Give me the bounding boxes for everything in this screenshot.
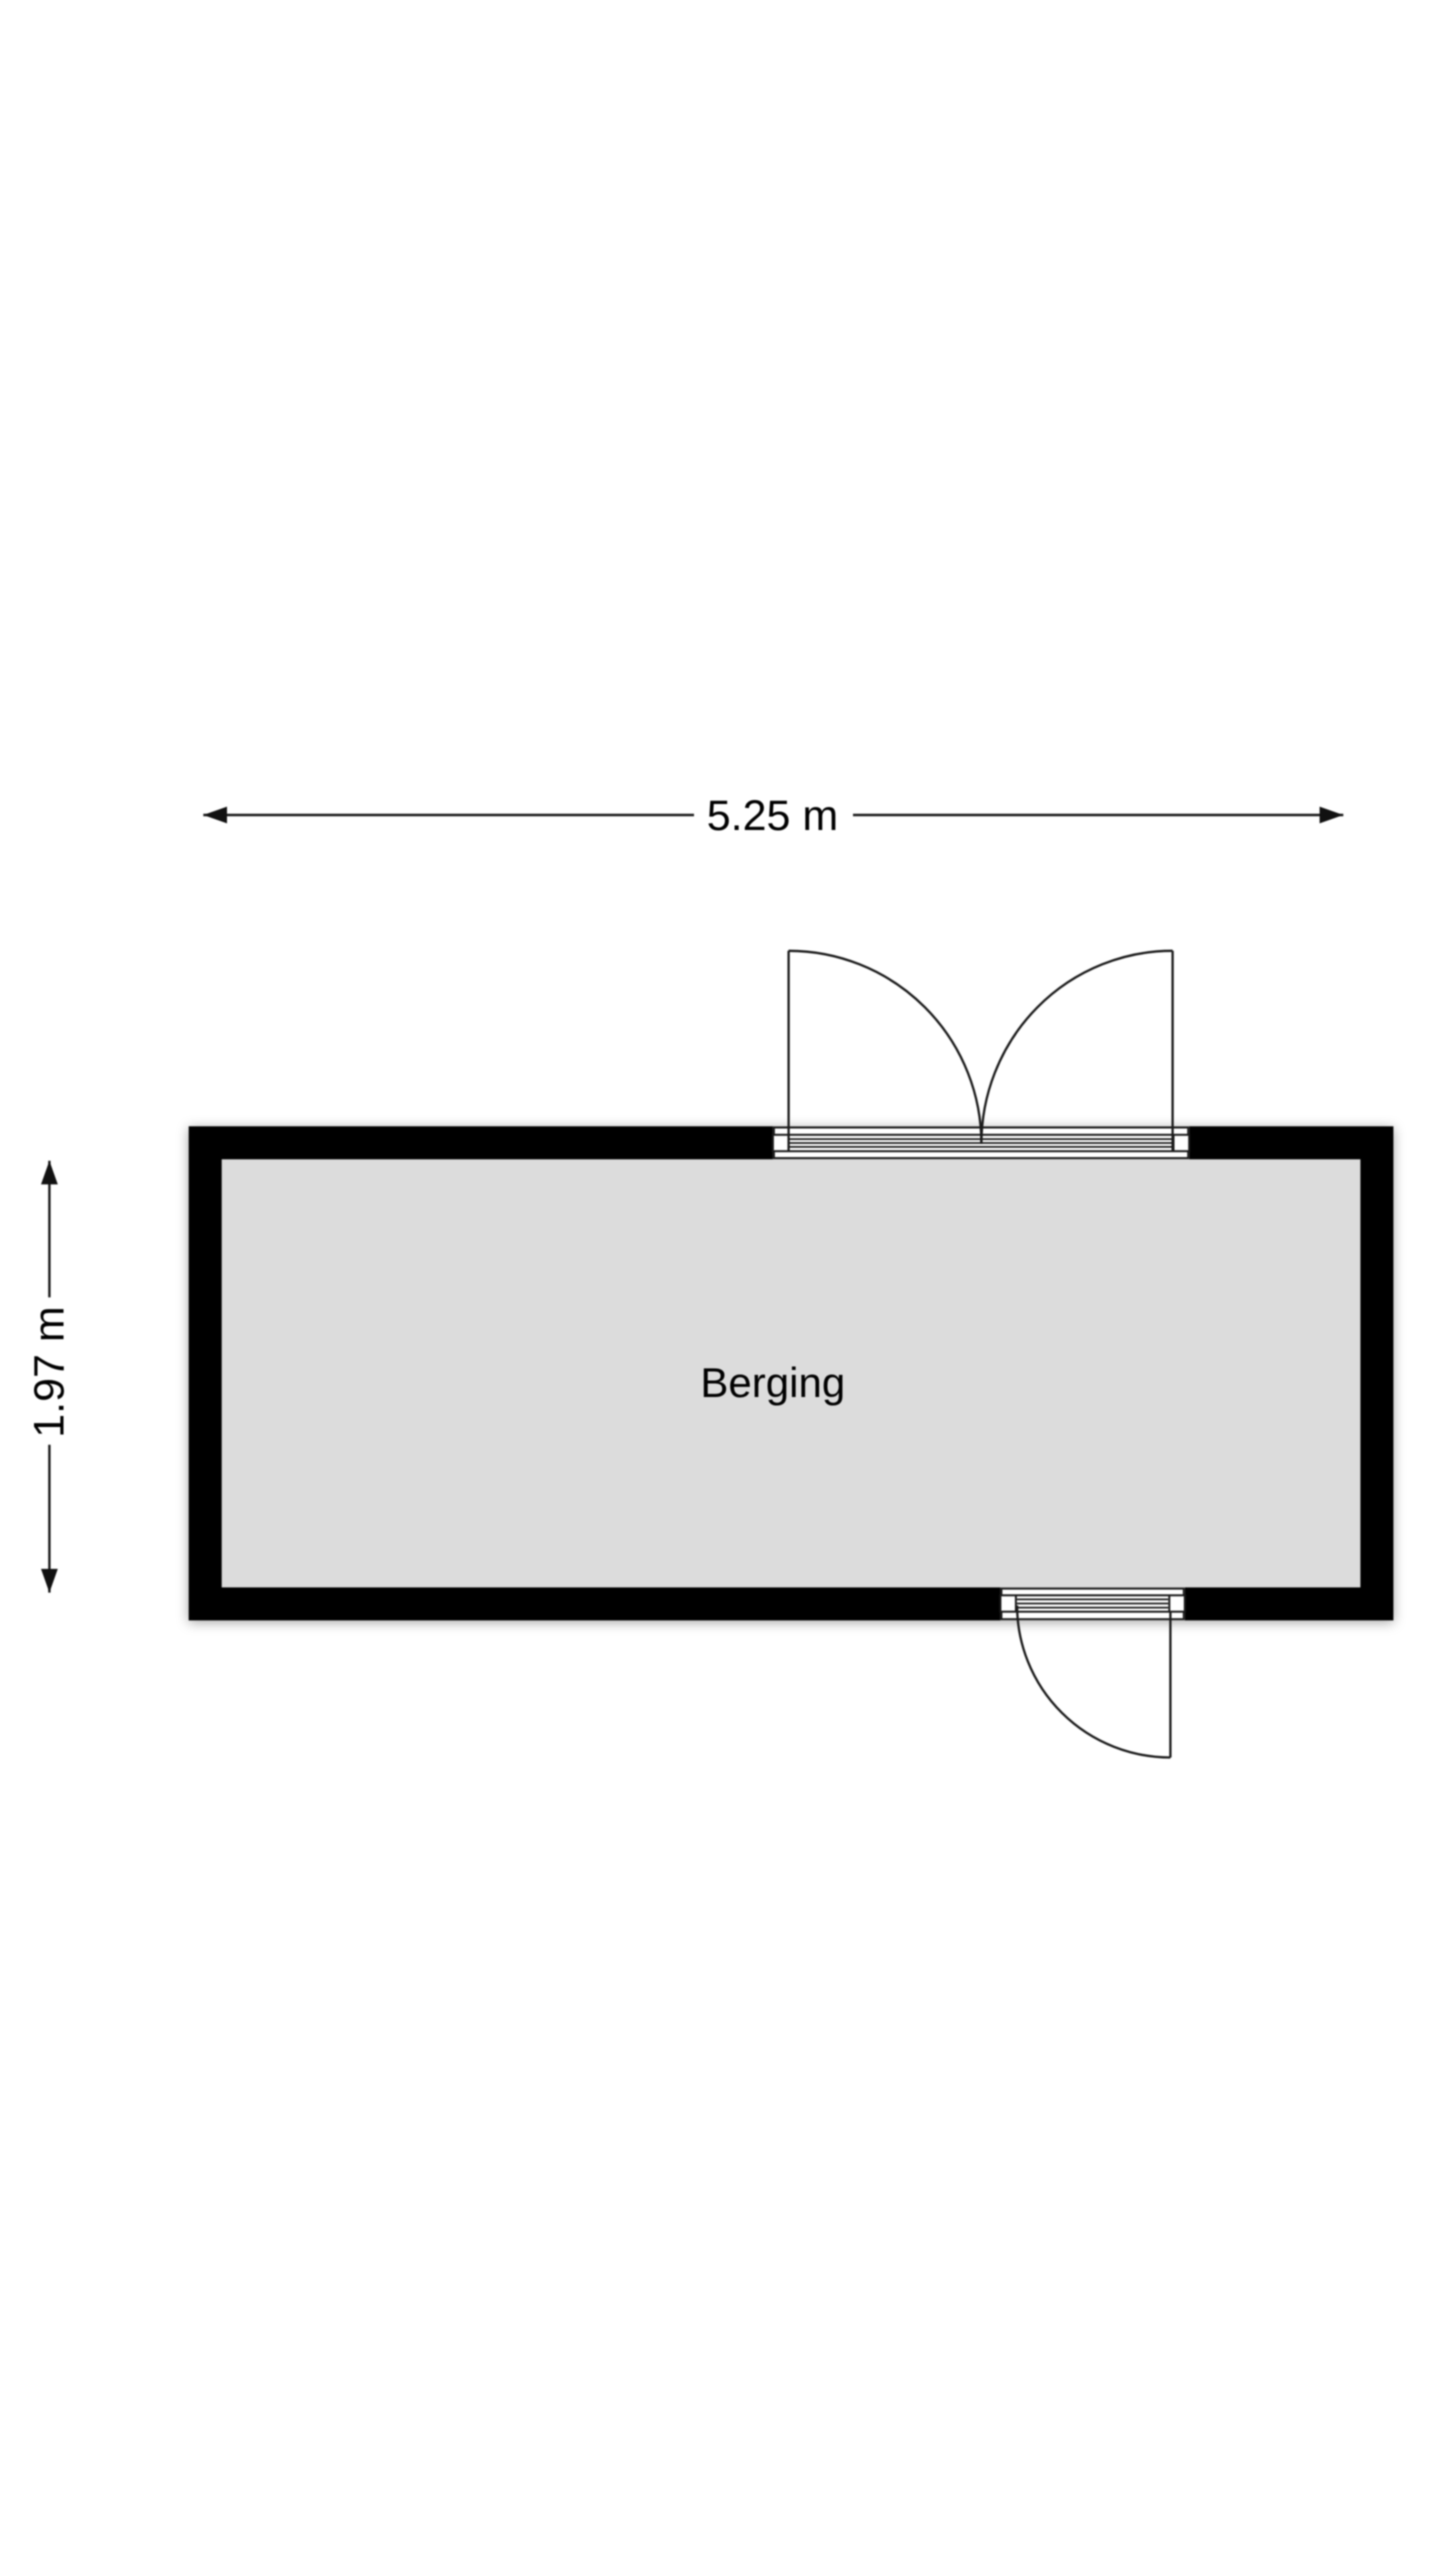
svg-text:5.25 m: 5.25 m <box>707 792 838 840</box>
svg-text:1.97 m: 1.97 m <box>26 1306 74 1437</box>
svg-text:Berging: Berging <box>700 1359 845 1406</box>
